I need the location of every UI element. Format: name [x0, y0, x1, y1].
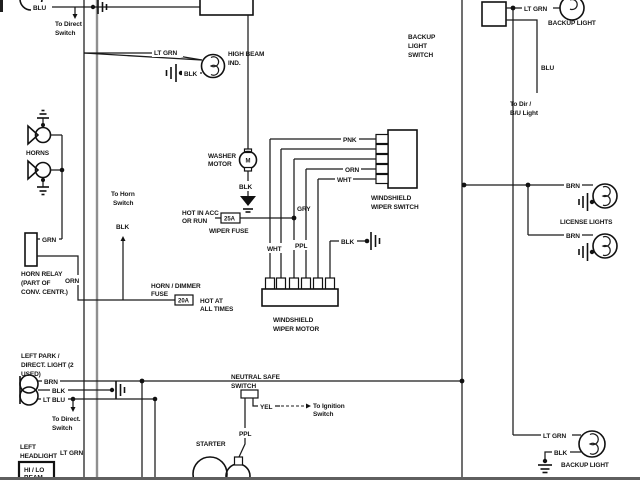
motor-body — [262, 289, 338, 306]
note-or-run: OR RUN — [182, 218, 207, 225]
component-label-backup-light: BACKUP LIGHT — [561, 462, 609, 469]
note-to-ignition-switch-2: Switch — [313, 411, 333, 418]
component-label-park-light: LEFT PARK / — [21, 353, 60, 360]
connector-box — [200, 0, 253, 15]
wire-label-brn: BRN — [44, 379, 58, 386]
wire-label-grn: GRN — [42, 237, 57, 244]
note-to-ignition-switch: To Ignition — [313, 403, 345, 410]
component-label-horn-dimmer-fuse-2: FUSE — [151, 291, 169, 298]
component-label-washer-motor: WASHER — [208, 153, 236, 160]
headlight-beam-label: HI / LO — [24, 467, 44, 474]
note-to-direct-switch-2: Switch — [52, 425, 72, 432]
wire-label-ltblu: LT BLU — [43, 397, 65, 404]
component-label-park-light-2: DIRECT. LIGHT (2 — [21, 362, 74, 369]
component-label-neutral-safe: NEUTRAL SAFE — [231, 374, 281, 381]
component-label-horn-dimmer-fuse: HORN / DIMMER — [151, 283, 201, 290]
note-to-direct-switch: To Direct — [55, 21, 83, 28]
switch-body — [241, 390, 258, 398]
component-label-starter: STARTER — [196, 441, 226, 448]
switch-body — [482, 2, 506, 26]
component-label-wiper-switch-2: WIPER SWITCH — [371, 204, 419, 211]
note-to-dir-bu-light: To Dir / — [510, 101, 531, 108]
wire-label-yel: YEL — [260, 404, 272, 411]
wire-label-brn: BRN — [566, 233, 580, 240]
wire-label-ltgrn: LT GRN — [543, 433, 567, 440]
wire-label-gry: GRY — [297, 206, 311, 213]
wire-label-ltgrn: LT GRN — [60, 450, 84, 457]
component-label-horn-relay-2: (PART OF — [21, 280, 51, 287]
component-label-washer-motor-2: MOTOR — [208, 161, 232, 168]
wire-label-wht: WHT — [337, 177, 352, 184]
note-to-direct-switch-2: Switch — [55, 30, 75, 37]
component-label-wiper-motor-2: WIPER MOTOR — [273, 326, 319, 333]
wire-label-orn: ORN — [345, 167, 360, 174]
wire-label-ltgrn: LT GRN — [524, 6, 548, 13]
component-label-backup-switch: BACKUP — [408, 34, 436, 41]
switch-body — [388, 130, 417, 188]
wire-label-ppl: PPL — [239, 431, 251, 438]
wire-label-blu: BLU — [33, 5, 46, 12]
wire-label-blk: BLK — [341, 239, 354, 246]
fuse-rating: 25A — [224, 217, 236, 223]
note-hot-in-acc: HOT IN ACC — [182, 210, 219, 217]
wire-label-pnk: PNK — [343, 137, 357, 144]
component-label-ind: IND. — [228, 60, 241, 67]
wiring-diagram-page: BLU To Direct Switch LT GRN HIGH BEAM IN… — [0, 0, 640, 480]
component-label-horn-relay-3: CONV. CENTR.) — [21, 289, 68, 296]
wire-label-orn: ORN — [65, 278, 80, 285]
wire-label-ltgrn: LT GRN — [154, 50, 178, 57]
relay-box — [25, 233, 37, 266]
component-label-horn-relay: HORN RELAY — [21, 271, 63, 278]
motor-m-glyph: M — [246, 159, 251, 165]
component-label-horns: HORNS — [26, 150, 50, 157]
wire-label-blk: BLK — [52, 388, 65, 395]
note-hot-at: HOT AT — [200, 298, 223, 305]
note-to-direct-switch: To Direct. — [52, 416, 81, 423]
note-to-horn-switch-2: Switch — [113, 200, 133, 207]
note-to-dir-bu-light-2: B/U Light — [510, 110, 539, 117]
wire-label-blu: BLU — [541, 65, 554, 72]
component-label-license-lights: LICENSE LIGHTS — [560, 219, 613, 226]
wire-label-blk: BLK — [116, 224, 129, 231]
component-label-backup-light: BACKUP LIGHT — [548, 20, 596, 27]
component-label-wiper-switch: WINDSHIELD — [371, 195, 412, 202]
component-label-neutral-safe-2: SWITCH — [231, 383, 256, 390]
wire-label-brn: BRN — [566, 183, 580, 190]
component-label-left-headlight: LEFT — [20, 444, 36, 451]
wire-label-blk: BLK — [239, 184, 252, 191]
component-label-wiper-motor: WINDSHIELD — [273, 317, 314, 324]
wire-label-blk: BLK — [184, 71, 197, 78]
component-label-backup-switch-3: SWITCH — [408, 52, 433, 59]
component-label-left-headlight-2: HEADLIGHT — [20, 453, 57, 460]
component-label-park-light-3: USED) — [21, 371, 41, 378]
component-label-high-beam: HIGH BEAM — [228, 51, 264, 58]
wiring-diagram-scan: BLU To Direct Switch LT GRN HIGH BEAM IN… — [0, 0, 640, 480]
wire-label-wht: WHT — [267, 246, 282, 253]
component-label-backup-switch-2: LIGHT — [408, 43, 427, 50]
fuse-rating: 20A — [178, 299, 190, 305]
wire-label-blk: BLK — [554, 450, 567, 457]
note-all-times: ALL TIMES — [200, 306, 234, 313]
note-to-horn-switch: To Horn — [111, 191, 135, 198]
wire-label-ppl: PPL — [295, 243, 307, 250]
component-label-wiper-fuse: WIPER FUSE — [209, 228, 249, 235]
